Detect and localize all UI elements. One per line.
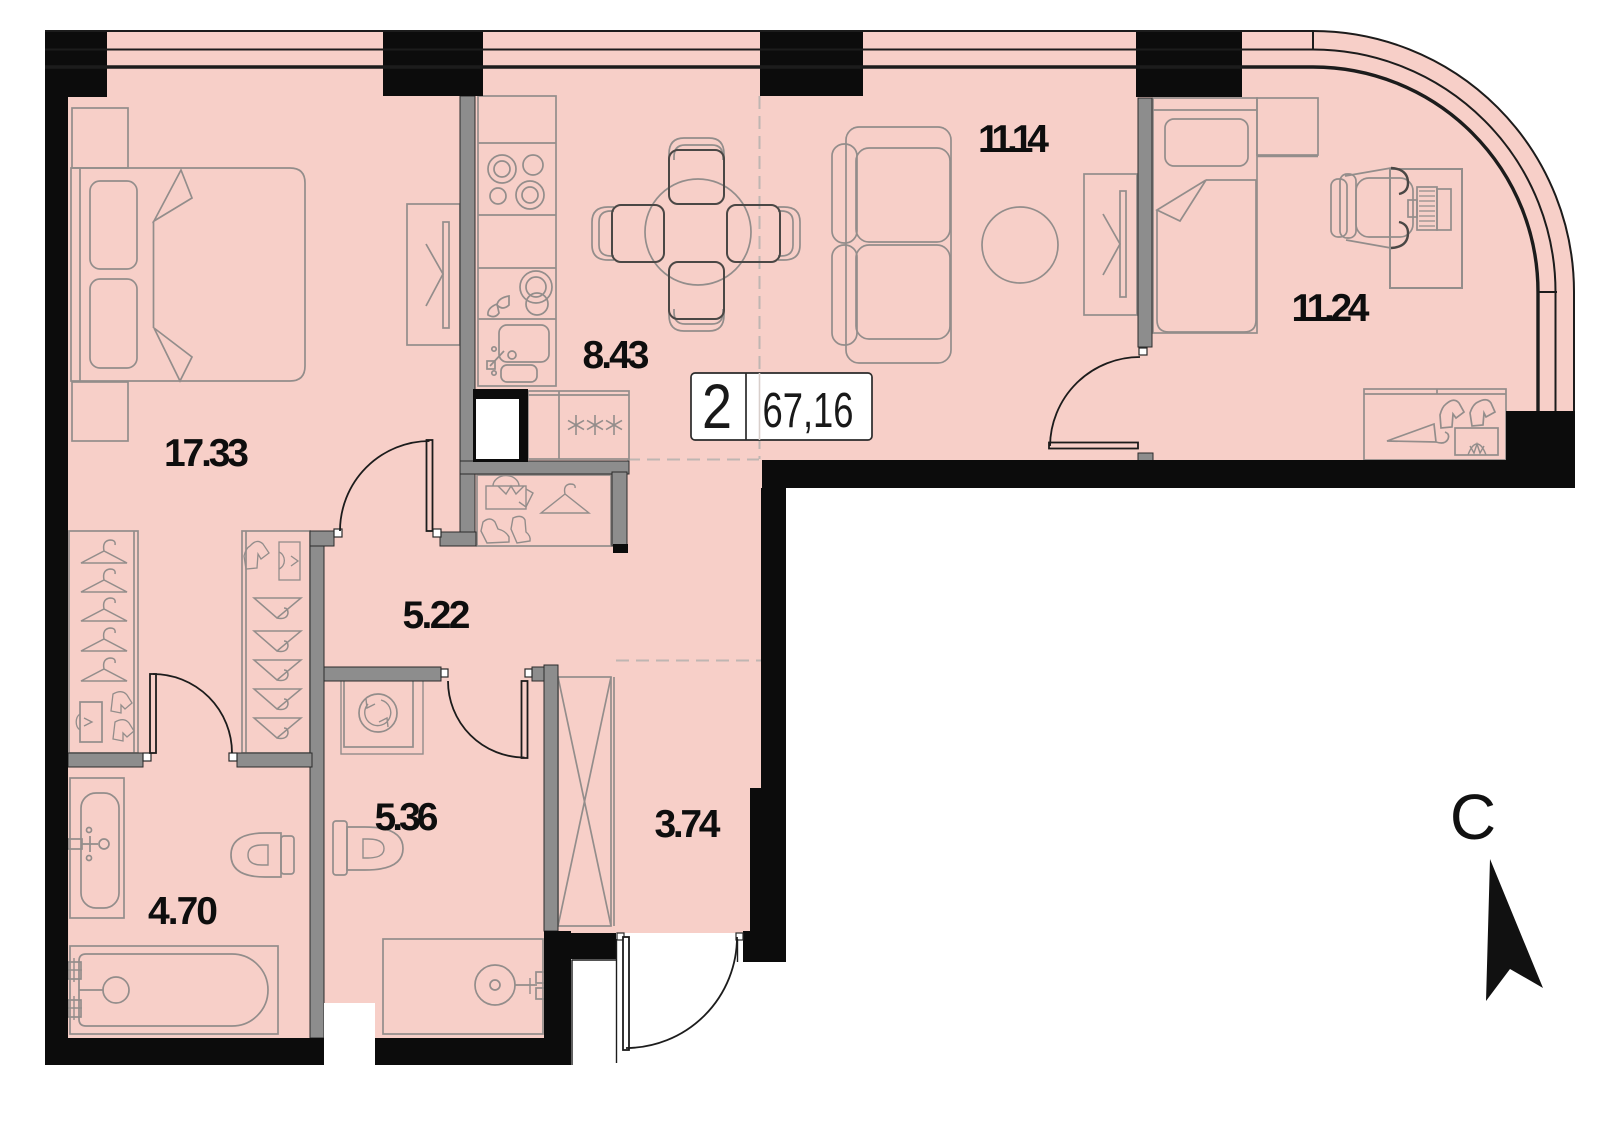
svg-text:11.24: 11.24 [1292, 287, 1370, 330]
svg-text:4.70: 4.70 [148, 890, 218, 933]
svg-text:C: C [1450, 781, 1496, 853]
svg-text:11.14: 11.14 [978, 118, 1049, 161]
svg-text:8.43: 8.43 [583, 334, 650, 377]
svg-text:5.36: 5.36 [375, 796, 439, 839]
svg-text:17.33: 17.33 [164, 432, 249, 475]
svg-text:5.22: 5.22 [403, 594, 471, 637]
svg-text:3.74: 3.74 [655, 803, 721, 846]
svg-text:2: 2 [702, 372, 732, 442]
svg-text:67,16: 67,16 [763, 384, 854, 438]
